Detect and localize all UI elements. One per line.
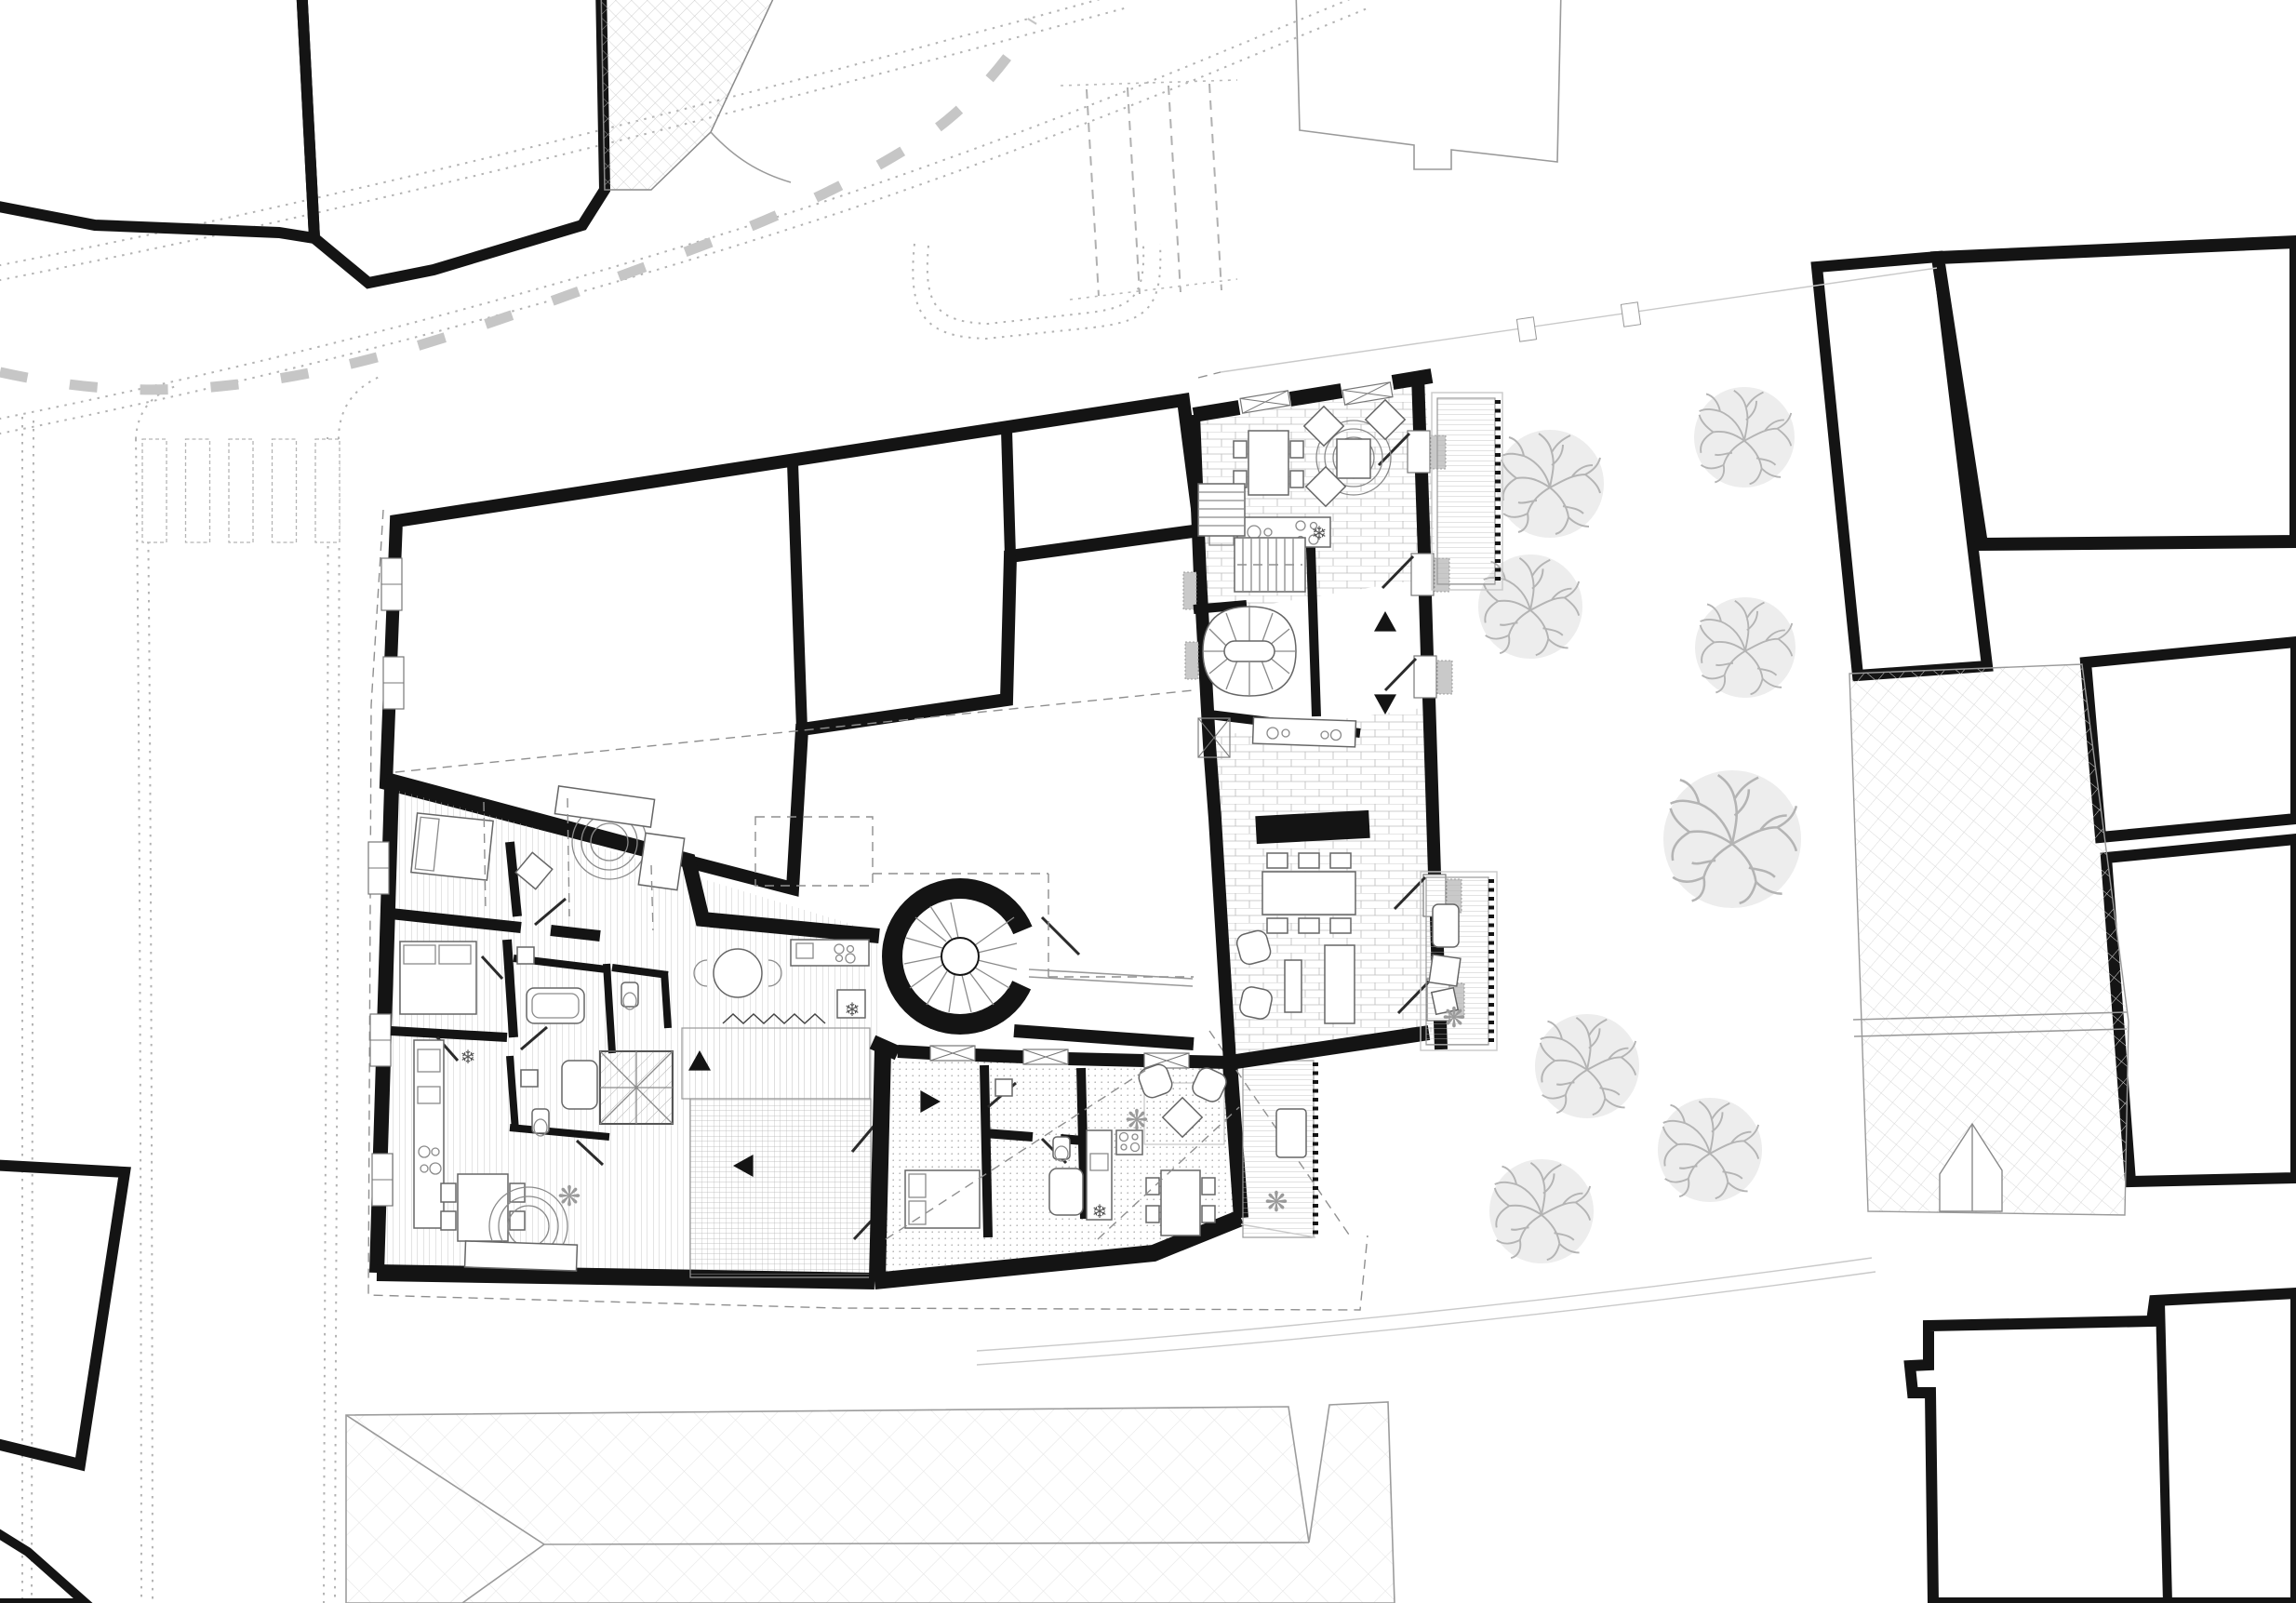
parking-edge — [1070, 279, 1237, 300]
neighbor-building-southwest — [0, 1165, 125, 1464]
lane-markings — [0, 20, 1033, 390]
fence-post — [1516, 317, 1536, 341]
tree — [1535, 1014, 1639, 1118]
cobbled-courtyard — [1849, 664, 2129, 1215]
closet — [1255, 810, 1369, 844]
fridge-icon: ❄ — [1312, 522, 1328, 544]
stair-oval — [1203, 607, 1296, 696]
trees — [1478, 387, 1801, 1263]
tree — [1489, 1159, 1594, 1263]
tree — [1496, 430, 1604, 538]
neighbor-building-northwest — [0, 0, 314, 238]
floor-plan-canvas: ❄❄❄❄❋❋❋❋ — [0, 0, 2296, 1603]
tree — [1695, 597, 1795, 698]
plant-icon: ❋ — [1442, 1002, 1465, 1035]
balcony-northeast — [1432, 393, 1502, 590]
neighbor-building-east-large — [1938, 242, 2296, 544]
neighbor-building-east-narrow — [1817, 257, 1987, 675]
neighbor-building-southwest-2 — [0, 1528, 86, 1603]
entrance-arrow-down — [1374, 694, 1396, 715]
fence-dotted — [1198, 372, 1221, 378]
plant-icon: ❋ — [1125, 1104, 1148, 1137]
context-buildings — [0, 0, 2296, 1603]
tree — [1663, 770, 1801, 908]
kitchen-west — [414, 1040, 444, 1228]
neighbor-outline-north — [1296, 0, 1561, 169]
lane-dashes — [0, 20, 1033, 390]
tree — [1658, 1098, 1762, 1202]
neighbor-building-east-low — [2106, 839, 2296, 1182]
neighbor-building-east-mid — [2086, 642, 2296, 837]
stair-straight — [1235, 538, 1305, 592]
skylight — [600, 1051, 673, 1124]
crosswalk-stripe — [273, 439, 297, 542]
street-curb — [136, 439, 153, 1603]
fridge-icon: ❄ — [1092, 1200, 1108, 1222]
main-building: ❄❄❄❄❋❋❋❋ — [368, 375, 1502, 1281]
neighbor-roof-sliver — [601, 0, 780, 190]
street-curb — [324, 437, 340, 1603]
parking-edge — [1061, 80, 1237, 86]
fence-post — [1621, 302, 1640, 327]
crosswalk-stripe — [315, 439, 340, 542]
parking-bays — [1061, 80, 1237, 300]
spiral-stair-tower — [882, 878, 1194, 1044]
curb-corner — [136, 376, 381, 439]
party-wall — [2160, 1302, 2168, 1603]
neighbor-roof-south — [346, 1402, 1395, 1603]
entrance-arrow-up — [1374, 611, 1396, 632]
stair-straight-2 — [1198, 484, 1245, 536]
plant-icon: ❋ — [557, 1181, 581, 1213]
fridge-icon: ❄ — [461, 1046, 476, 1068]
site-plan-page: ❄❄❄❄❋❋❋❋ — [0, 0, 2296, 1603]
deck-lower — [690, 1099, 871, 1277]
tree — [1694, 387, 1795, 488]
driveway-curb — [913, 244, 1160, 339]
driveway-curb — [928, 246, 1143, 324]
crosswalk-stripe — [229, 439, 253, 542]
street-curb — [22, 417, 33, 1603]
fridge-icon: ❄ — [845, 998, 861, 1021]
crosswalk — [142, 439, 340, 542]
road-network — [0, 0, 1369, 1603]
road-curb — [0, 7, 1128, 282]
parking-bay-line — [1168, 86, 1181, 292]
neighbor-building-north — [301, 0, 605, 283]
deck-court — [682, 1028, 870, 1099]
neighbor-building-southeast — [1910, 1293, 2296, 1603]
parking-bay-line — [1209, 84, 1221, 290]
garden-path — [977, 1258, 1876, 1365]
parking-bay-line — [1128, 87, 1140, 294]
crosswalk-stripe — [186, 439, 210, 542]
crosswalk-stripe — [142, 439, 167, 542]
sliver-edge — [711, 132, 791, 182]
plant-icon: ❋ — [1264, 1186, 1288, 1219]
